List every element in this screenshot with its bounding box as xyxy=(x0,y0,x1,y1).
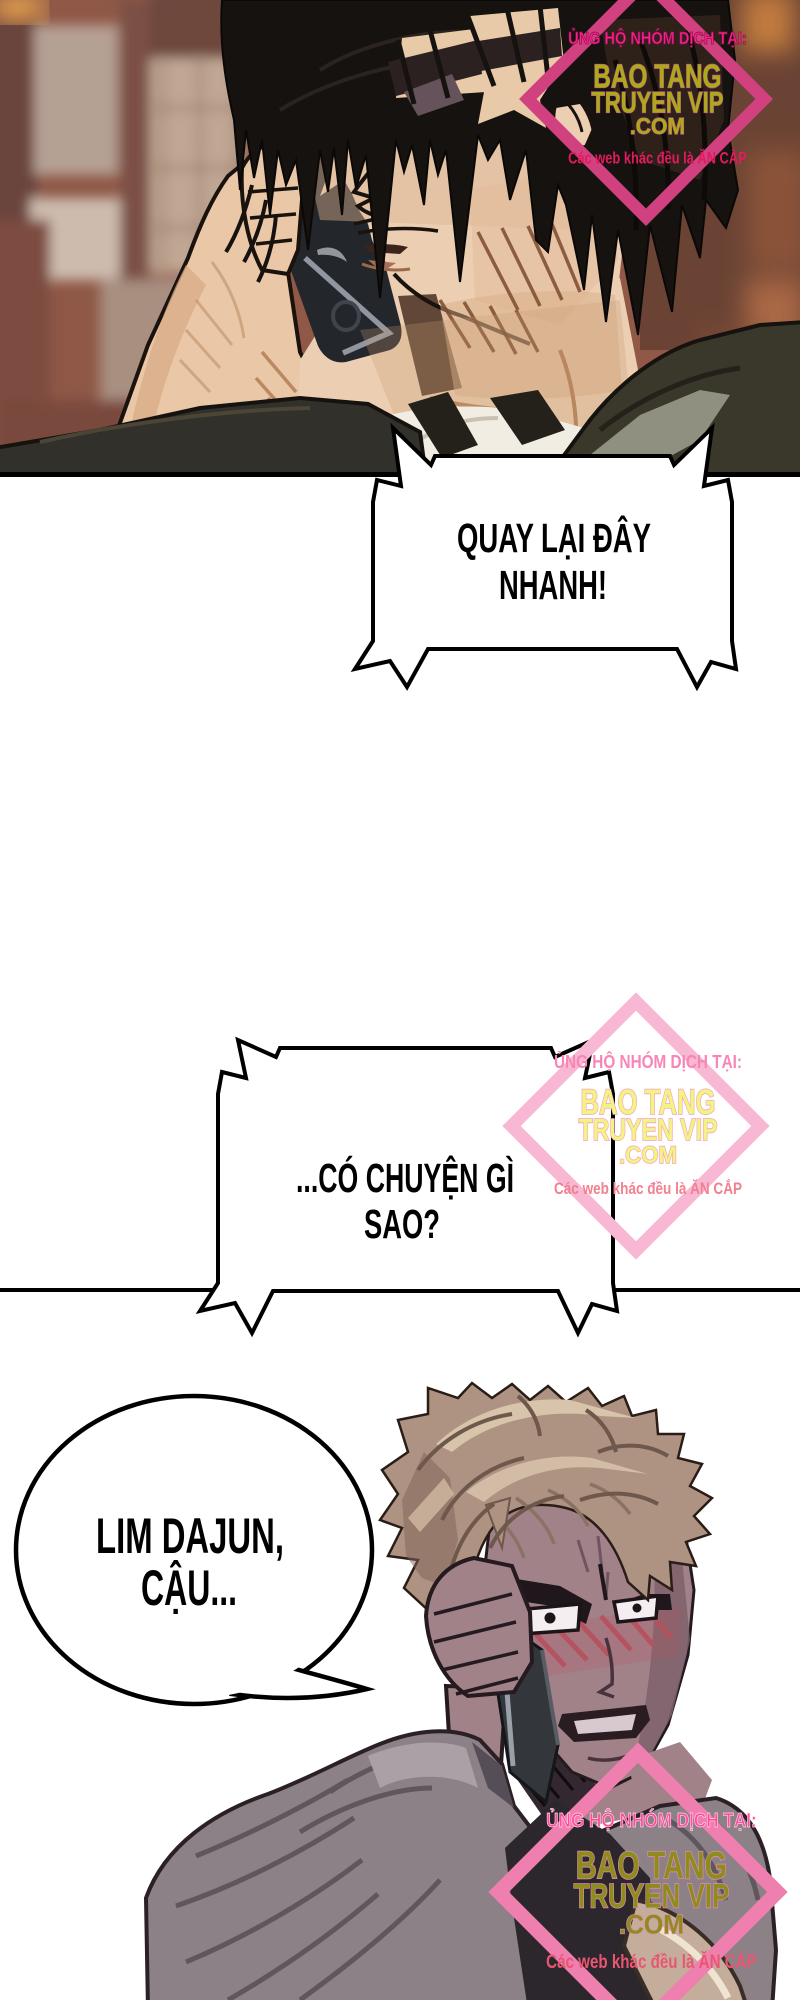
svg-text:ỦNG HỘ NHÓM DỊCH TẠI:: ỦNG HỘ NHÓM DỊCH TẠI: xyxy=(554,1051,742,1072)
svg-text:Các web khác đều là ĂN CẮP: Các web khác đều là ĂN CẮP xyxy=(568,149,747,168)
svg-text:ỦNG HỘ NHÓM DỊCH TẠI:: ỦNG HỘ NHÓM DỊCH TẠI: xyxy=(568,29,747,48)
svg-text:.COM: .COM xyxy=(619,1142,677,1169)
svg-text:LIM DAJUN,: LIM DAJUN, xyxy=(96,1508,284,1564)
svg-text:NHANH!: NHANH! xyxy=(499,562,607,608)
svg-text:ỦNG HỘ NHÓM DỊCH TẠI:: ỦNG HỘ NHÓM DỊCH TẠI: xyxy=(546,1808,757,1832)
svg-text:QUAY LẠI ĐÂY: QUAY LẠI ĐÂY xyxy=(457,515,651,561)
svg-text:...CÓ CHUYỆN GÌ: ...CÓ CHUYỆN GÌ xyxy=(296,1155,514,1201)
svg-text:Các web khác đều là ĂN CẮP: Các web khác đều là ĂN CẮP xyxy=(554,1179,742,1198)
svg-text:.COM: .COM xyxy=(630,113,685,139)
svg-text:.COM: .COM xyxy=(619,1909,684,1939)
svg-text:SAO?: SAO? xyxy=(364,1201,440,1247)
svg-text:Các web khác đều là ĂN CẮP: Các web khác đều là ĂN CẮP xyxy=(546,1951,757,1973)
svg-text:CẬU...: CẬU... xyxy=(141,1560,237,1616)
